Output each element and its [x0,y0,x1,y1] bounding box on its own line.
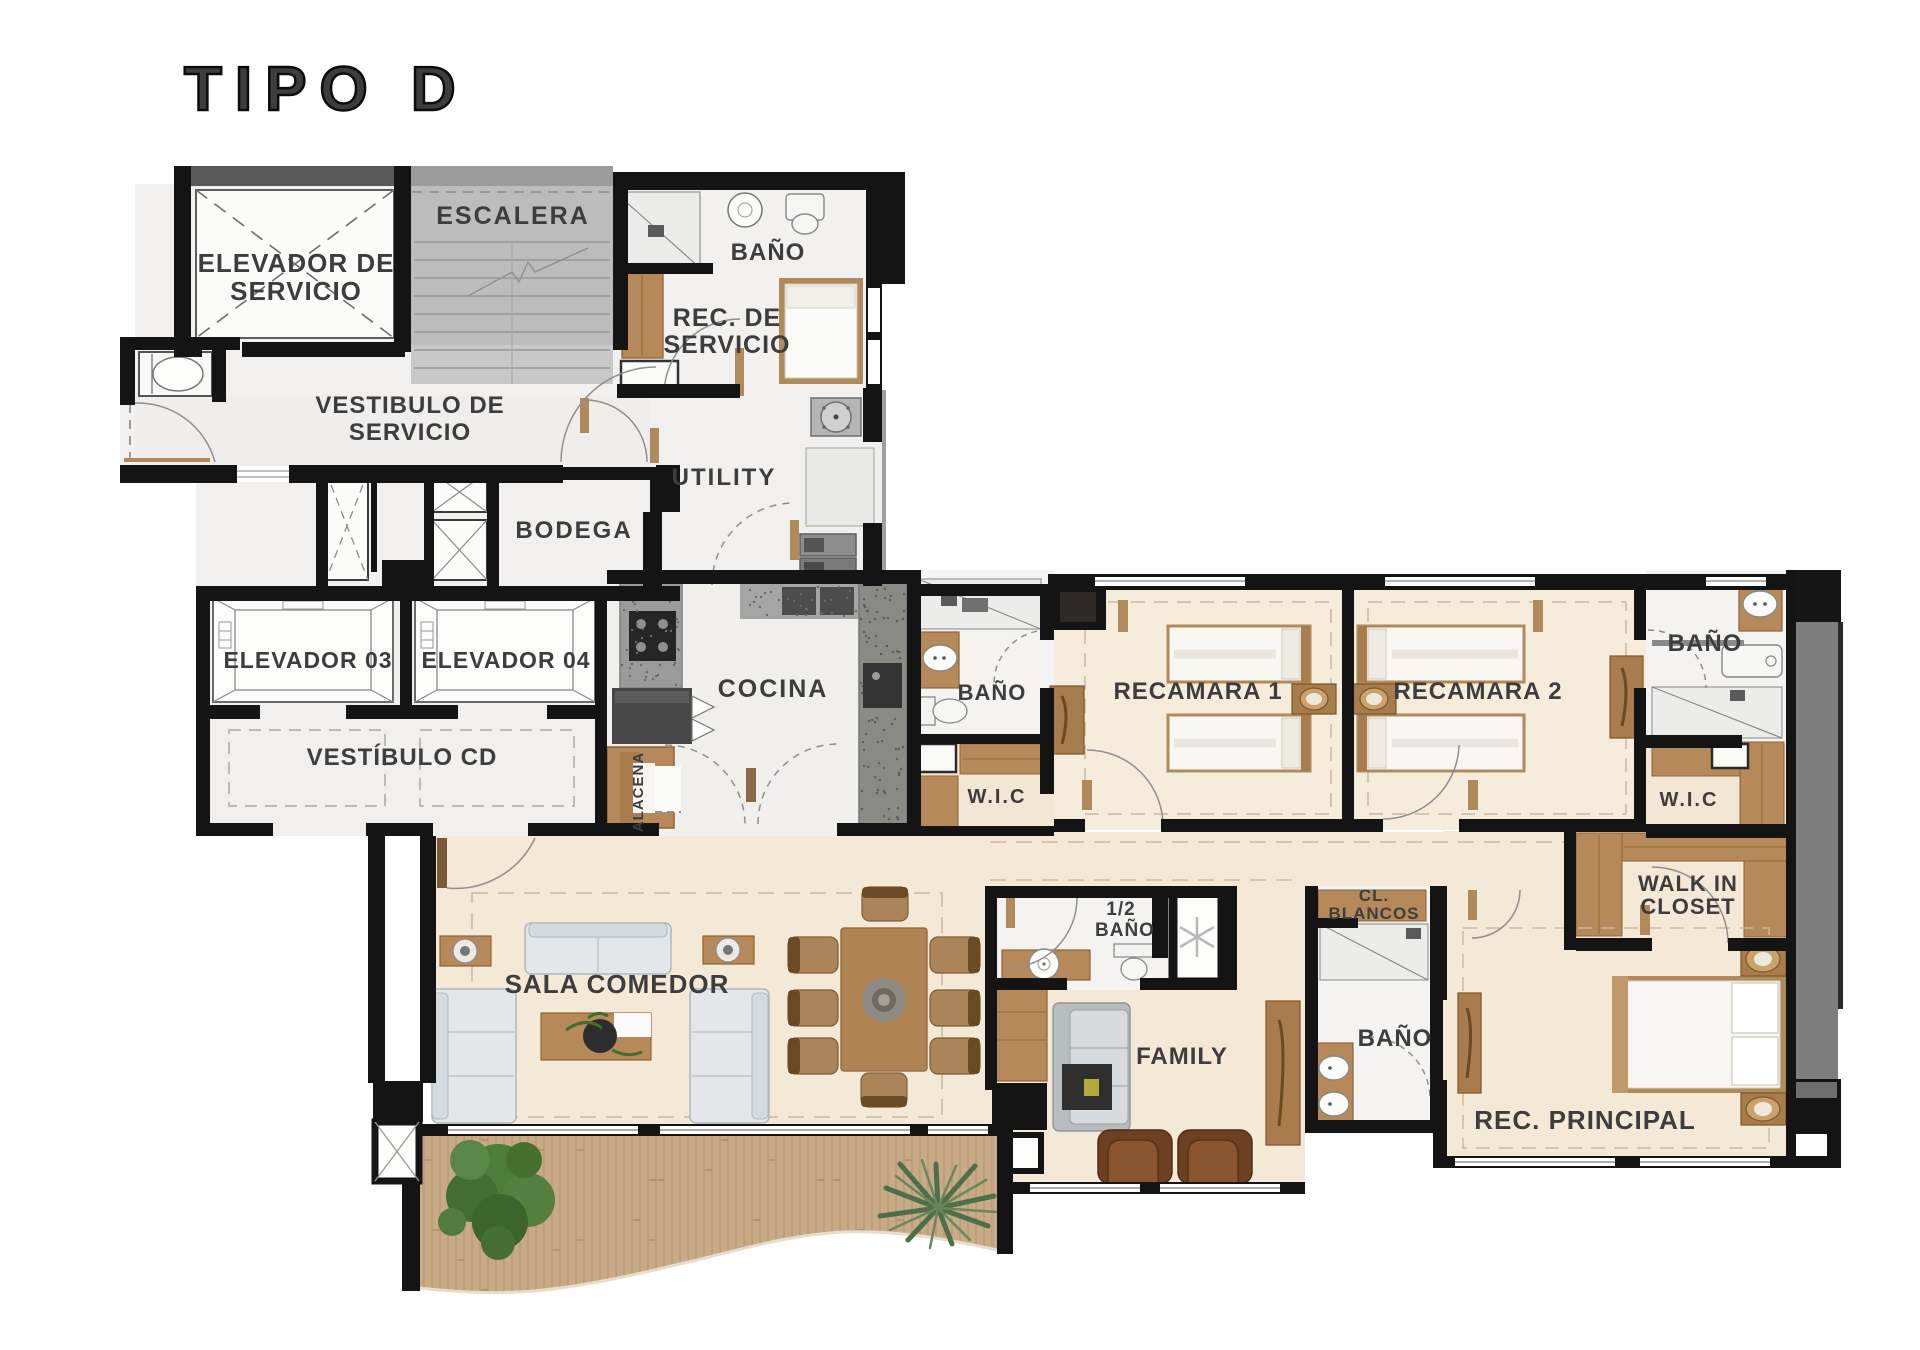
svg-text:VESTIBULO DE: VESTIBULO DE [315,392,504,419]
svg-text:SERVICIO: SERVICIO [349,419,471,446]
svg-text:ESCALERA: ESCALERA [436,202,590,230]
svg-text:BAÑO: BAÑO [958,680,1027,705]
svg-text:BAÑO: BAÑO [731,238,806,266]
svg-text:REC. DE: REC. DE [673,304,781,332]
svg-text:SERVICIO: SERVICIO [230,276,362,306]
svg-text:SERVICIO: SERVICIO [663,331,790,359]
svg-text:BODEGA: BODEGA [515,517,632,544]
svg-text:CLOSET: CLOSET [1640,894,1735,919]
svg-text:BAÑO: BAÑO [1358,1024,1433,1052]
svg-text:ELEVADOR 04: ELEVADOR 04 [421,647,590,673]
svg-text:ALACENA: ALACENA [630,752,647,832]
svg-text:REC. PRINCIPAL: REC. PRINCIPAL [1474,1105,1696,1135]
svg-text:VESTÍBULO CD: VESTÍBULO CD [307,743,498,771]
svg-text:CL.: CL. [1359,886,1389,905]
svg-text:TIPO D: TIPO D [184,55,469,124]
svg-text:BAÑO: BAÑO [1668,629,1743,657]
svg-text:BLANCOS: BLANCOS [1328,904,1419,923]
svg-text:FAMILY: FAMILY [1136,1043,1228,1070]
svg-text:RECAMARA 1: RECAMARA 1 [1113,678,1282,705]
svg-text:W.I.C: W.I.C [1660,789,1719,811]
svg-text:SALA COMEDOR: SALA COMEDOR [505,969,730,999]
svg-text:UTILITY: UTILITY [672,464,777,491]
svg-text:W.I.C: W.I.C [968,786,1027,808]
svg-text:BAÑO: BAÑO [1095,919,1155,941]
svg-text:ELEVADOR DE: ELEVADOR DE [198,248,395,278]
svg-text:COCINA: COCINA [718,675,829,703]
svg-text:WALK IN: WALK IN [1638,871,1738,896]
svg-text:ELEVADOR 03: ELEVADOR 03 [223,647,392,673]
svg-text:1/2: 1/2 [1106,899,1135,920]
svg-text:RECAMARA 2: RECAMARA 2 [1393,678,1562,705]
